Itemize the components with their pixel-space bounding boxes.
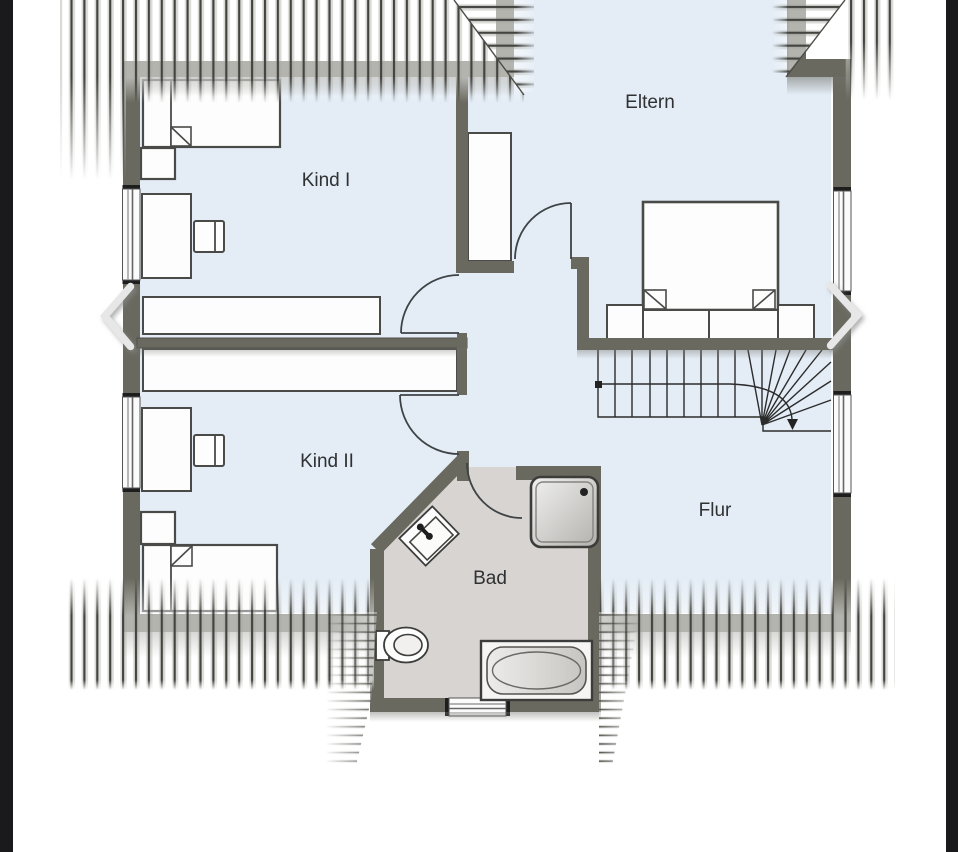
svg-text:Flur: Flur: [699, 500, 732, 521]
svg-text:Eltern: Eltern: [625, 92, 675, 113]
svg-text:Kind I: Kind I: [302, 170, 351, 191]
svg-text:Kind II: Kind II: [300, 451, 354, 472]
svg-text:Bad: Bad: [473, 568, 507, 589]
